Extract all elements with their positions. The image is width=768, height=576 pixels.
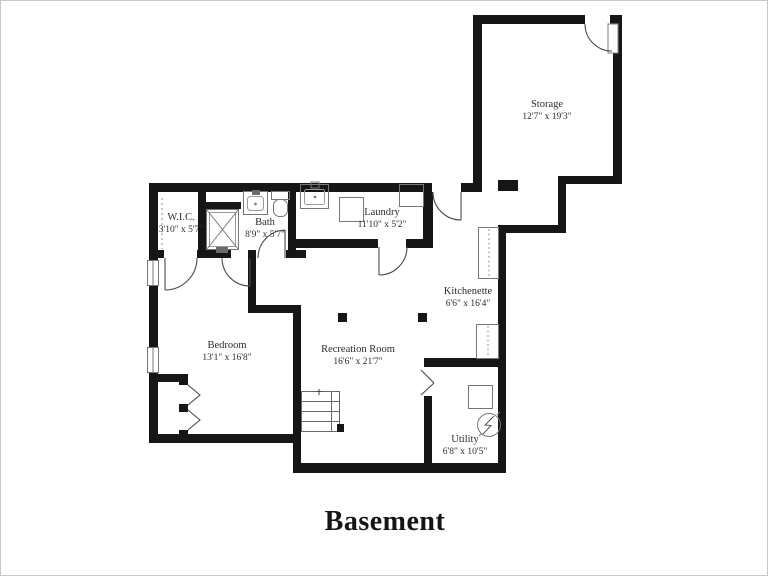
door-arc: [379, 247, 407, 275]
wall-segment: [558, 176, 622, 184]
wall-segment: [248, 305, 301, 313]
walls-layer: [149, 15, 622, 473]
wall-segment: [558, 176, 566, 233]
wall-segment: [498, 180, 518, 191]
wall-segment: [248, 250, 256, 313]
wall-segment: [198, 191, 206, 254]
wall-segment: [498, 225, 506, 473]
closet-door-chevron: [188, 410, 200, 430]
closet-door-chevron: [188, 385, 200, 405]
kitchenette-counter: [477, 325, 499, 359]
floor-plan: Storage 12'7" x 19'3" W.I.C. 3'10" x 5'7…: [0, 0, 768, 576]
door-leaf: [608, 24, 618, 53]
fixtures-layer: [162, 182, 501, 437]
wall-segment: [149, 183, 158, 443]
stairs-icon: [302, 389, 345, 432]
door-arc: [433, 192, 461, 220]
washer-icon: [340, 198, 364, 222]
door-arc: [222, 258, 250, 286]
water-heater-icon: [469, 386, 493, 409]
toilet-icon: [272, 192, 290, 217]
door-leaf: [421, 370, 434, 383]
door-arc: [258, 230, 285, 258]
shower-icon: [207, 210, 239, 254]
wall-segment: [198, 202, 241, 209]
kitchenette-counter: [479, 228, 499, 279]
wall-segment: [179, 374, 188, 385]
floor-title: Basement: [325, 506, 446, 538]
wall-segment: [149, 250, 164, 258]
wall-segment: [424, 396, 432, 473]
wall-segment: [298, 463, 506, 473]
bath-sink-icon: [244, 190, 268, 215]
wall-segment: [179, 404, 188, 412]
wall-segment: [179, 430, 188, 441]
support-post: [338, 313, 347, 322]
floor-plan-drawing: [1, 1, 768, 576]
electrical-panel-icon: [478, 412, 501, 437]
wall-segment: [149, 434, 301, 443]
wall-segment: [424, 358, 503, 367]
wall-segment: [288, 239, 378, 248]
wall-segment: [423, 192, 433, 248]
wall-segment: [473, 15, 585, 24]
support-post: [418, 313, 427, 322]
wall-segment: [473, 15, 482, 192]
wall-segment: [293, 309, 301, 473]
door-leaf: [421, 383, 434, 395]
wall-segment: [498, 225, 566, 233]
door-arc: [165, 258, 197, 290]
